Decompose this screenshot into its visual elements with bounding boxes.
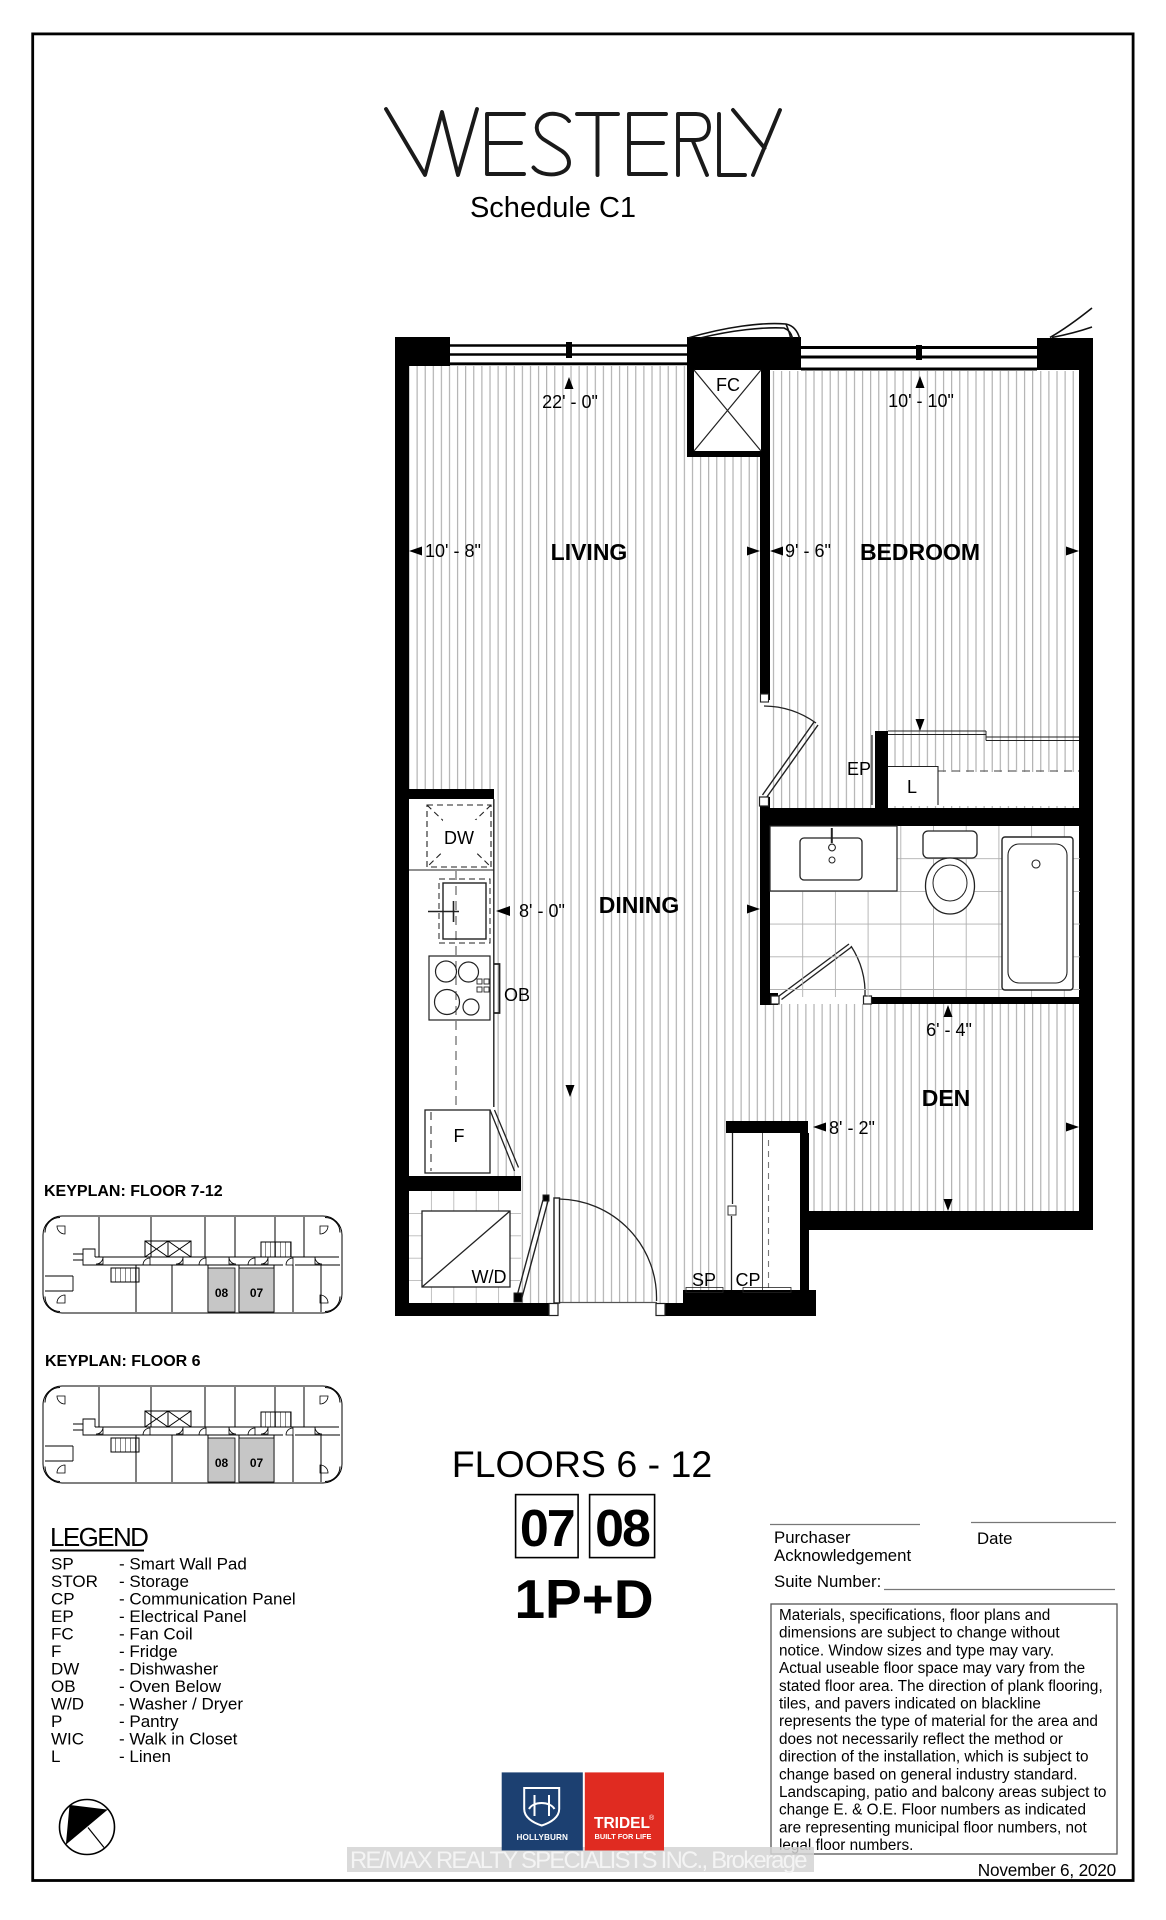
svg-text:FC: FC — [51, 1625, 74, 1644]
svg-text:®: ® — [649, 1814, 655, 1822]
svg-text:8' - 2": 8' - 2" — [829, 1118, 875, 1138]
svg-text:FC: FC — [716, 375, 740, 395]
svg-text:direction of the installation,: direction of the installation, which is … — [779, 1749, 1089, 1766]
svg-text:does not necessarily reflect t: does not necessarily reflect the method … — [779, 1731, 1063, 1748]
svg-text:- Linen: - Linen — [119, 1747, 171, 1766]
svg-text:Landscaping, patio and balcony: Landscaping, patio and balcony areas sub… — [779, 1784, 1106, 1801]
svg-text:CP: CP — [51, 1590, 75, 1609]
svg-text:07: 07 — [250, 1456, 264, 1470]
svg-text:6' - 4": 6' - 4" — [926, 1020, 972, 1040]
svg-text:stated floor area. The directi: stated floor area. The direction of plan… — [779, 1678, 1103, 1695]
svg-text:change E. & O.E. Floor numbers: change E. & O.E. Floor numbers as indica… — [779, 1802, 1086, 1819]
svg-text:dimensions are subject to chan: dimensions are subject to change without — [779, 1625, 1060, 1642]
svg-text:EP: EP — [847, 759, 871, 779]
svg-text:RE/MAX REALTY SPECIALISTS INC.: RE/MAX REALTY SPECIALISTS INC., Brokerag… — [350, 1847, 807, 1874]
svg-text:10' - 10": 10' - 10" — [888, 391, 954, 411]
svg-text:- Walk in Closet: - Walk in Closet — [119, 1730, 238, 1749]
svg-text:L: L — [907, 777, 917, 797]
svg-text:represents the type of materia: represents the type of material for the … — [779, 1713, 1098, 1730]
svg-text:- Pantry: - Pantry — [119, 1712, 179, 1731]
svg-text:STOR: STOR — [51, 1572, 98, 1591]
svg-text:1P+D: 1P+D — [514, 1568, 653, 1630]
svg-text:08: 08 — [215, 1286, 229, 1300]
svg-text:DW: DW — [444, 828, 474, 848]
svg-text:10' - 8": 10' - 8" — [425, 541, 481, 561]
svg-text:- Fridge: - Fridge — [119, 1642, 178, 1661]
svg-text:change based on general indust: change based on general industry standar… — [779, 1766, 1078, 1783]
svg-text:- Smart Wall Pad: - Smart Wall Pad — [119, 1555, 247, 1574]
svg-text:LIVING: LIVING — [551, 539, 628, 565]
svg-text:LEGEND: LEGEND — [50, 1522, 148, 1552]
svg-text:07: 07 — [520, 1500, 574, 1558]
svg-text:SP: SP — [51, 1555, 74, 1574]
svg-text:SP: SP — [692, 1270, 716, 1290]
svg-text:FLOORS 6 - 12: FLOORS 6 - 12 — [452, 1443, 713, 1485]
svg-text:P: P — [51, 1712, 62, 1731]
svg-text:Actual useable floor space may: Actual useable floor space may vary from… — [779, 1660, 1085, 1677]
svg-text:tiles, and pavers indicated on: tiles, and pavers indicated on blackline — [779, 1696, 1041, 1713]
svg-text:KEYPLAN: FLOOR 6: KEYPLAN: FLOOR 6 — [45, 1353, 201, 1370]
svg-text:08: 08 — [215, 1456, 229, 1470]
svg-text:- Washer / Dryer: - Washer / Dryer — [119, 1695, 243, 1714]
svg-text:- Fan Coil: - Fan Coil — [119, 1625, 193, 1644]
svg-text:notice. Window sizes and type: notice. Window sizes and type may vary. — [779, 1642, 1054, 1659]
svg-text:EP: EP — [51, 1607, 74, 1626]
svg-text:BUILT FOR LIFE: BUILT FOR LIFE — [595, 1832, 652, 1841]
svg-text:22' - 0": 22' - 0" — [542, 392, 598, 412]
svg-text:WIC: WIC — [51, 1730, 84, 1749]
svg-text:- Dishwasher: - Dishwasher — [119, 1660, 219, 1679]
svg-text:Acknowledgement: Acknowledgement — [774, 1546, 911, 1565]
svg-text:Schedule C1: Schedule C1 — [470, 192, 636, 224]
svg-text:November 6, 2020: November 6, 2020 — [978, 1860, 1116, 1880]
svg-text:- Storage: - Storage — [119, 1572, 189, 1591]
svg-text:DINING: DINING — [599, 892, 680, 918]
svg-text:are representing municipal flo: are representing municipal floor numbers… — [779, 1819, 1088, 1836]
svg-text:W/D: W/D — [472, 1267, 507, 1287]
svg-text:Suite Number:: Suite Number: — [774, 1572, 881, 1591]
svg-text:Purchaser: Purchaser — [774, 1528, 851, 1547]
svg-text:OB: OB — [51, 1677, 76, 1696]
svg-text:- Electrical Panel: - Electrical Panel — [119, 1607, 247, 1626]
svg-text:OB: OB — [504, 985, 530, 1005]
svg-text:08: 08 — [595, 1500, 650, 1558]
svg-text:- Oven Below: - Oven Below — [119, 1677, 222, 1696]
svg-text:8' - 0": 8' - 0" — [519, 901, 565, 921]
svg-text:TRIDEL: TRIDEL — [594, 1815, 650, 1832]
svg-text:DW: DW — [51, 1660, 79, 1679]
svg-text:BEDROOM: BEDROOM — [860, 539, 980, 565]
svg-text:9' - 6": 9' - 6" — [785, 541, 831, 561]
svg-text:HOLLYBURN: HOLLYBURN — [517, 1833, 569, 1842]
svg-text:L: L — [51, 1747, 60, 1766]
svg-text:Materials, specifications, flo: Materials, specifications, floor plans a… — [779, 1607, 1050, 1624]
svg-text:07: 07 — [250, 1286, 264, 1300]
svg-text:F: F — [51, 1642, 61, 1661]
svg-text:Date: Date — [977, 1529, 1012, 1548]
svg-text:W/D: W/D — [51, 1695, 84, 1714]
svg-text:KEYPLAN: FLOOR 7-12: KEYPLAN: FLOOR 7-12 — [44, 1183, 223, 1200]
svg-text:DEN: DEN — [922, 1085, 971, 1111]
svg-text:- Communication Panel: - Communication Panel — [119, 1590, 296, 1609]
svg-text:CP: CP — [735, 1270, 760, 1290]
svg-text:F: F — [454, 1126, 465, 1146]
